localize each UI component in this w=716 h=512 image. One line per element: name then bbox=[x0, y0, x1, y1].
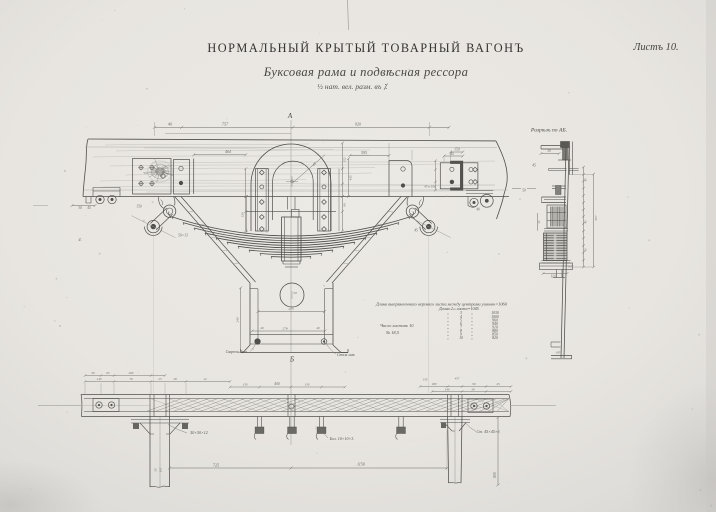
svg-text:45: 45 bbox=[584, 220, 588, 224]
svg-text:278: 278 bbox=[282, 327, 287, 331]
svg-text:45: 45 bbox=[532, 164, 536, 168]
svg-text:45: 45 bbox=[450, 152, 454, 156]
svg-text:725: 725 bbox=[213, 462, 219, 467]
svg-text:30: 30 bbox=[547, 149, 551, 153]
svg-text:45: 45 bbox=[537, 220, 541, 224]
svg-text:400: 400 bbox=[274, 382, 280, 386]
svg-text:Б: Б bbox=[289, 356, 294, 364]
svg-text:464: 464 bbox=[225, 149, 231, 154]
svg-text:50×50×12: 50×50×12 bbox=[190, 430, 207, 435]
svg-text:45: 45 bbox=[414, 229, 418, 233]
svg-text:130: 130 bbox=[241, 212, 245, 217]
svg-text:457: 457 bbox=[455, 377, 460, 381]
svg-text:240: 240 bbox=[235, 317, 239, 322]
svg-text:150: 150 bbox=[423, 378, 428, 382]
svg-text:½ нат. вел. разм. въ ⁒: ½ нат. вел. разм. въ ⁒ bbox=[317, 82, 388, 91]
svg-text:28: 28 bbox=[173, 377, 177, 381]
svg-text:595: 595 bbox=[361, 150, 367, 155]
svg-text:25: 25 bbox=[158, 377, 162, 381]
svg-text:30: 30 bbox=[471, 387, 475, 391]
svg-text:50: 50 bbox=[154, 468, 158, 472]
svg-text:Буксовая рама и подвѣсная ресс: Буксовая рама и подвѣсная рессора bbox=[263, 65, 469, 79]
svg-text:435: 435 bbox=[349, 175, 353, 180]
svg-text:150: 150 bbox=[454, 148, 460, 152]
svg-text:76: 76 bbox=[129, 377, 133, 381]
svg-text:50: 50 bbox=[293, 291, 297, 295]
svg-text:45: 45 bbox=[584, 178, 588, 182]
svg-text:Разрѣзъ по АБ.: Разрѣзъ по АБ. bbox=[530, 128, 567, 134]
svg-text:Листъ 10.: Листъ 10. bbox=[632, 42, 678, 53]
svg-text:А: А bbox=[287, 112, 293, 120]
svg-text:Сталь лит.: Сталь лит. bbox=[337, 353, 355, 357]
svg-text:12: 12 bbox=[203, 377, 207, 381]
svg-text:30: 30 bbox=[78, 206, 82, 210]
svg-text:Число листовъ 10: Число листовъ 10 bbox=[380, 323, 414, 328]
svg-text:90: 90 bbox=[343, 203, 347, 207]
svg-text:45: 45 bbox=[496, 382, 500, 386]
svg-text:275: 275 bbox=[288, 307, 293, 311]
svg-text:557: 557 bbox=[594, 215, 598, 220]
svg-text:290: 290 bbox=[129, 371, 134, 375]
svg-text:Сварочн. жел.: Сварочн. жел. bbox=[226, 350, 248, 354]
svg-text:920: 920 bbox=[355, 122, 362, 127]
svg-text:90: 90 bbox=[472, 382, 476, 386]
svg-text:40: 40 bbox=[260, 326, 264, 330]
svg-text:45: 45 bbox=[87, 206, 91, 210]
svg-text:65: 65 bbox=[106, 371, 110, 375]
svg-text:4.: 4. bbox=[78, 237, 81, 242]
svg-text:45 и 10ъ: 45 и 10ъ bbox=[424, 185, 436, 189]
svg-text:Ст. 45×45×6: Ст. 45×45×6 bbox=[476, 429, 499, 434]
svg-text:10: 10 bbox=[459, 336, 463, 340]
svg-text:45: 45 bbox=[584, 248, 588, 252]
svg-text:40: 40 bbox=[316, 326, 320, 330]
svg-text:800: 800 bbox=[493, 472, 497, 478]
svg-text:50: 50 bbox=[522, 189, 526, 193]
svg-text:150: 150 bbox=[243, 383, 248, 387]
svg-text:820: 820 bbox=[492, 336, 498, 340]
svg-text:110: 110 bbox=[550, 275, 555, 279]
svg-text:50×13: 50×13 bbox=[178, 234, 188, 238]
svg-text:105: 105 bbox=[159, 467, 163, 472]
svg-text:30: 30 bbox=[91, 371, 95, 375]
svg-text:757: 757 bbox=[222, 122, 229, 127]
svg-text:140: 140 bbox=[97, 377, 102, 381]
svg-text:150: 150 bbox=[136, 205, 142, 209]
svg-text:40: 40 bbox=[476, 208, 480, 212]
svg-text:150: 150 bbox=[305, 383, 310, 387]
svg-text:Бол. 10×10×3.: Бол. 10×10×3. bbox=[329, 436, 354, 441]
svg-text:180: 180 bbox=[432, 382, 437, 386]
svg-text:105: 105 bbox=[556, 351, 561, 355]
svg-text:152: 152 bbox=[343, 157, 347, 162]
svg-text:140: 140 bbox=[445, 387, 450, 391]
svg-text:НОРМАЛЬНЫЙ КРЫТЫЙ ТОВАРНЫЙ: НОРМАЛЬНЫЙ КРЫТЫЙ ТОВАРНЫЙ ВАГОНЪ bbox=[207, 41, 524, 55]
svg-text:1150: 1150 bbox=[357, 462, 366, 467]
